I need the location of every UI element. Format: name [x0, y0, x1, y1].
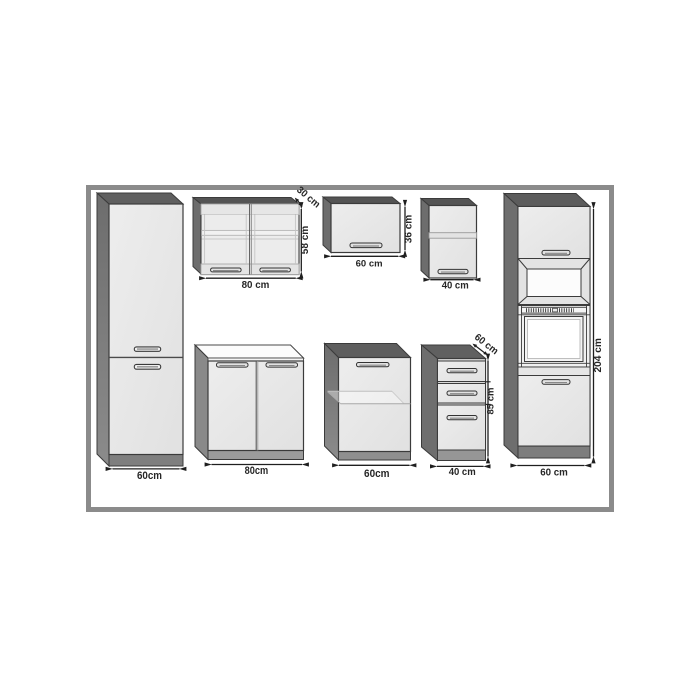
svg-text:36 cm: 36 cm — [403, 215, 415, 244]
svg-text:204 cm: 204 cm — [592, 338, 604, 372]
svg-text:60 cm: 60 cm — [356, 258, 383, 269]
svg-text:80cm: 80cm — [245, 465, 269, 477]
svg-text:85 cm: 85 cm — [486, 388, 497, 415]
svg-text:60cm: 60cm — [137, 470, 162, 482]
svg-text:60 cm: 60 cm — [540, 467, 568, 478]
svg-text:58 cm: 58 cm — [299, 226, 311, 255]
svg-text:80 cm: 80 cm — [242, 280, 270, 291]
svg-text:60cm: 60cm — [364, 468, 390, 480]
svg-text:40 cm: 40 cm — [449, 467, 476, 478]
svg-text:40 cm: 40 cm — [442, 280, 469, 291]
